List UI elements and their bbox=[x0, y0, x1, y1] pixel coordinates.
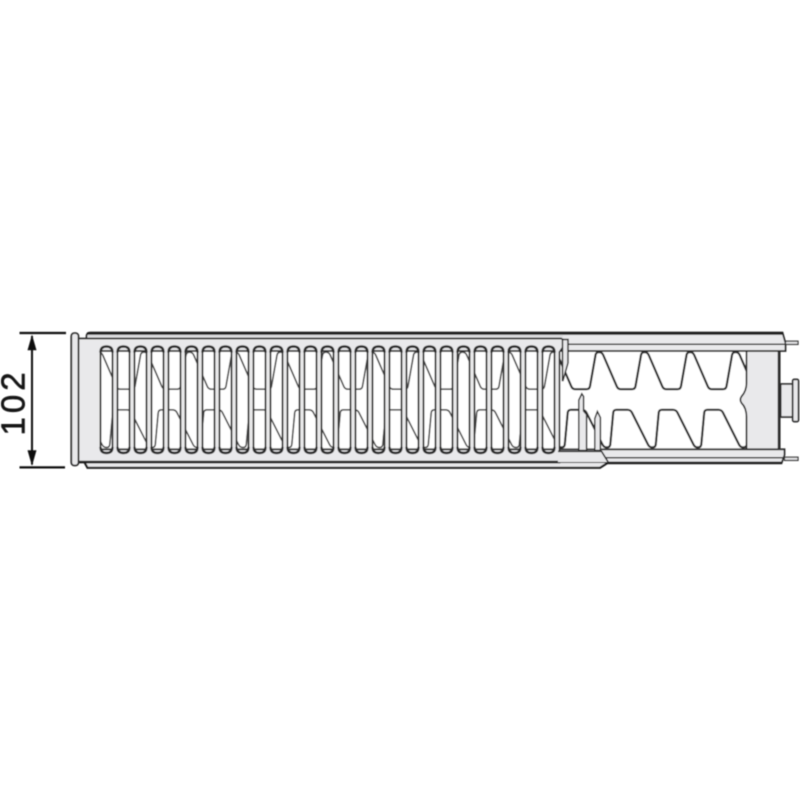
svg-text:102: 102 bbox=[0, 368, 32, 435]
